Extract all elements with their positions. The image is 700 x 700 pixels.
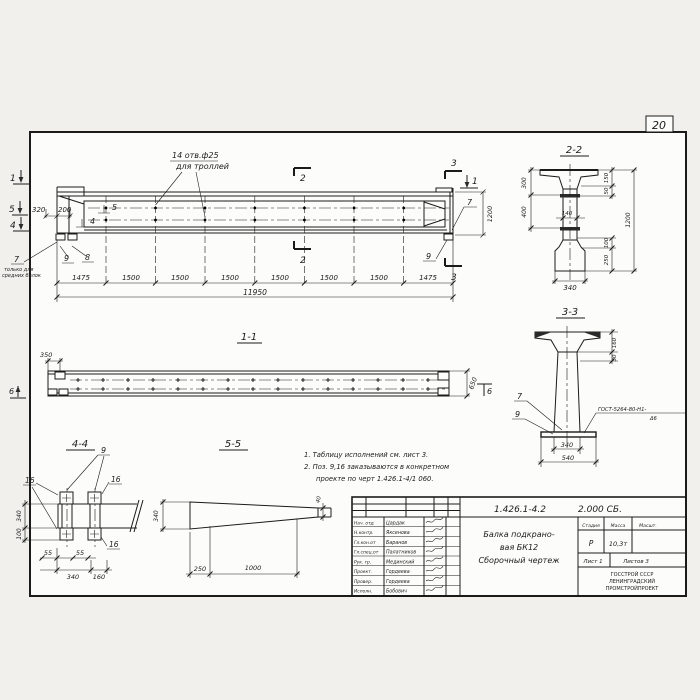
org-line1: ГОССТРОЙ СССР <box>611 571 654 578</box>
note-line-2: 2. Поз. 9,16 заказываются в конкретном <box>304 463 449 471</box>
drawing-sheet-page: 20 14 отв.ф25 для троллей 320 200 5 4 <box>0 0 700 700</box>
dim-1200-right: 1200 <box>486 206 494 223</box>
role-name: Гордеева <box>386 579 410 585</box>
dim-140: 140 <box>562 211 573 217</box>
role-name: Палатников <box>386 550 416 556</box>
position-mark-5: 5 <box>112 203 117 212</box>
dim-segment-3: 1500 <box>171 274 189 282</box>
dim-340: 340 <box>153 510 160 522</box>
document-code: 2.000 СБ. <box>578 505 622 515</box>
dim-segment-6: 1500 <box>320 274 338 282</box>
hole-note-line1: 14 отв.ф25 <box>172 151 219 160</box>
sheet-label: Лист 1 <box>582 559 602 565</box>
position-mark-7-left: 7 <box>14 255 20 264</box>
mass-header: Масса <box>611 523 626 529</box>
scale-header: Масшт. <box>639 523 657 529</box>
section-3-3-title: 3-3 <box>562 307 578 318</box>
dim-100: 100 <box>16 528 23 540</box>
cut-mark-6-right: 6 <box>487 387 492 396</box>
cut-mark-5-left: 5 <box>9 205 15 215</box>
position-mark-4: 4 <box>90 217 95 226</box>
dim-400: 400 <box>521 206 528 218</box>
dim-segment-1: 1475 <box>72 274 90 282</box>
dim-340-left: 340 <box>16 510 23 522</box>
dim-340-bottom: 340 <box>563 284 577 292</box>
position-mark-9: 9 <box>515 410 520 419</box>
hole-note-line2: для троллей <box>175 162 229 171</box>
mass-value: 10,3т <box>609 540 627 548</box>
dim-segment-2: 1500 <box>122 274 140 282</box>
role-label: Гл.кон.от <box>354 540 376 546</box>
sheets-label: Листов 3 <box>622 559 649 565</box>
cut-mark-2-bottom: 2 <box>300 256 306 266</box>
role-name: Бобович <box>386 589 407 595</box>
dim-55-b: 55 <box>76 549 84 557</box>
position-mark-8: 8 <box>85 253 90 262</box>
role-label: Провер. <box>354 579 372 585</box>
dim-total-length: 11950 <box>243 288 267 297</box>
section-5-5-title: 5-5 <box>225 439 241 450</box>
section-2-2-title: 2-2 <box>566 145 582 156</box>
role-name: Яксенова <box>385 530 410 536</box>
note-line-3: проекте по черт 1.426.1-4/1 060. <box>316 475 434 483</box>
dim-540: 540 <box>562 454 574 462</box>
page-number: 20 <box>652 119 666 132</box>
dim-segment-8: 1475 <box>419 274 437 282</box>
cut-mark-1-right: 1 <box>472 177 478 187</box>
position-mark-9: 9 <box>101 446 106 455</box>
weld-note-line1: ГОСТ-5264-80-Н1- <box>598 407 646 413</box>
role-label: Нач. отд <box>354 521 374 527</box>
role-label: Исполн. <box>354 589 372 595</box>
dim-200: 200 <box>58 206 72 214</box>
dim-segment-4: 1500 <box>221 274 239 282</box>
engineering-drawing: 20 14 отв.ф25 для троллей 320 200 5 4 <box>0 0 700 700</box>
dim-1000: 1000 <box>245 564 262 572</box>
dim-250: 250 <box>194 565 206 573</box>
dim-30: 30 <box>612 354 618 361</box>
stage-header: Стадия <box>582 523 600 529</box>
role-name: Гордеева <box>386 569 410 575</box>
cut-mark-3-top: 3 <box>451 159 457 169</box>
weld-note-line2: Δ6 <box>649 416 658 422</box>
dim-340-bottom: 340 <box>67 573 79 581</box>
notes-block: 1. Таблицу исполнений см. лист 3. 2. Поз… <box>304 451 449 483</box>
dim-50: 50 <box>604 187 610 194</box>
position-mark-16-left: 16 <box>25 476 35 485</box>
dim-250: 250 <box>604 254 610 265</box>
role-label: Н.контр. <box>354 530 374 536</box>
position-mark-16-right: 16 <box>111 475 121 484</box>
section-1-1-title: 1-1 <box>241 332 257 343</box>
dim-160: 160 <box>93 573 105 581</box>
cut-mark-2-top: 2 <box>300 174 306 184</box>
dim-300: 300 <box>521 177 528 189</box>
position-mark-9-right: 9 <box>426 252 431 261</box>
dim-segment-7: 1500 <box>370 274 388 282</box>
stage-value: Р <box>589 539 594 548</box>
role-name: Мединский <box>386 560 414 566</box>
dim-150: 150 <box>604 172 610 183</box>
role-label: Рук. гр. <box>354 560 371 566</box>
cut-mark-1-left: 1 <box>10 174 16 184</box>
position-mark-16-bottom: 16 <box>109 540 119 549</box>
dim-350: 350 <box>40 351 52 359</box>
role-name: Цардак <box>386 521 405 527</box>
document-number: 1.426.1-4.2 <box>494 505 546 515</box>
dim-320: 320 <box>32 206 46 214</box>
role-label: Гл.спец.от <box>354 550 379 556</box>
org-line2: ЛЕНИНГРАДСКИЙ <box>609 578 655 585</box>
position-mark-9-left: 9 <box>64 254 69 263</box>
dim-160: 160 <box>612 337 618 348</box>
product-title-line2: вая БК12 <box>500 543 538 552</box>
role-label: Проект. <box>354 569 372 575</box>
dim-55-a: 55 <box>44 549 52 557</box>
section-4-4-title: 4-4 <box>72 439 88 450</box>
dim-100: 100 <box>604 237 610 248</box>
cut-mark-6-left: 6 <box>9 387 14 396</box>
dim-segment-5: 1500 <box>271 274 289 282</box>
dim-1200-section: 1200 <box>625 212 632 227</box>
role-name: Баранов <box>386 540 407 546</box>
cut-mark-4-left: 4 <box>10 221 16 231</box>
note-line-1: 1. Таблицу исполнений см. лист 3. <box>304 451 428 459</box>
pos7-note-line2: средних балок <box>2 273 41 279</box>
dim-340: 340 <box>561 441 573 449</box>
org-line3: ПРОМСТРОЙПРОЕКТ <box>606 585 660 592</box>
product-title-line3: Сборочный чертеж <box>479 556 561 565</box>
product-title-line1: Балка подкрано- <box>483 530 554 539</box>
